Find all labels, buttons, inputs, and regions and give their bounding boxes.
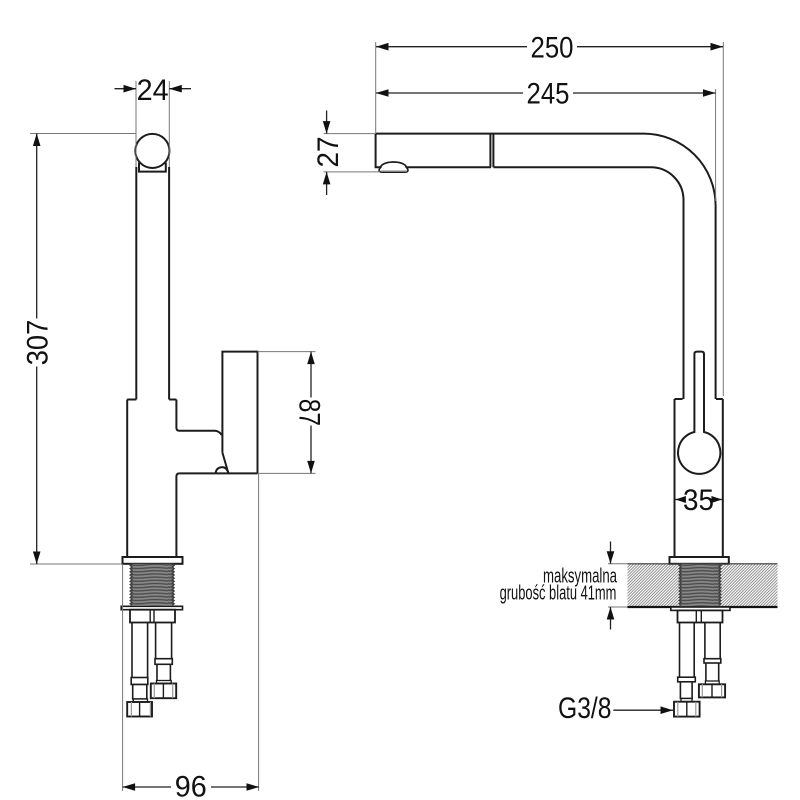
svg-text:307: 307 [22,320,55,366]
svg-text:96: 96 [175,771,207,800]
svg-text:24: 24 [137,74,169,107]
svg-text:G3/8: G3/8 [558,692,612,725]
svg-text:87: 87 [293,399,326,426]
svg-text:245: 245 [527,78,570,111]
svg-text:27: 27 [312,137,345,168]
svg-text:35: 35 [683,484,714,517]
svg-text:250: 250 [531,32,574,65]
svg-text:grubość blatu 41mm: grubość blatu 41mm [500,582,617,604]
